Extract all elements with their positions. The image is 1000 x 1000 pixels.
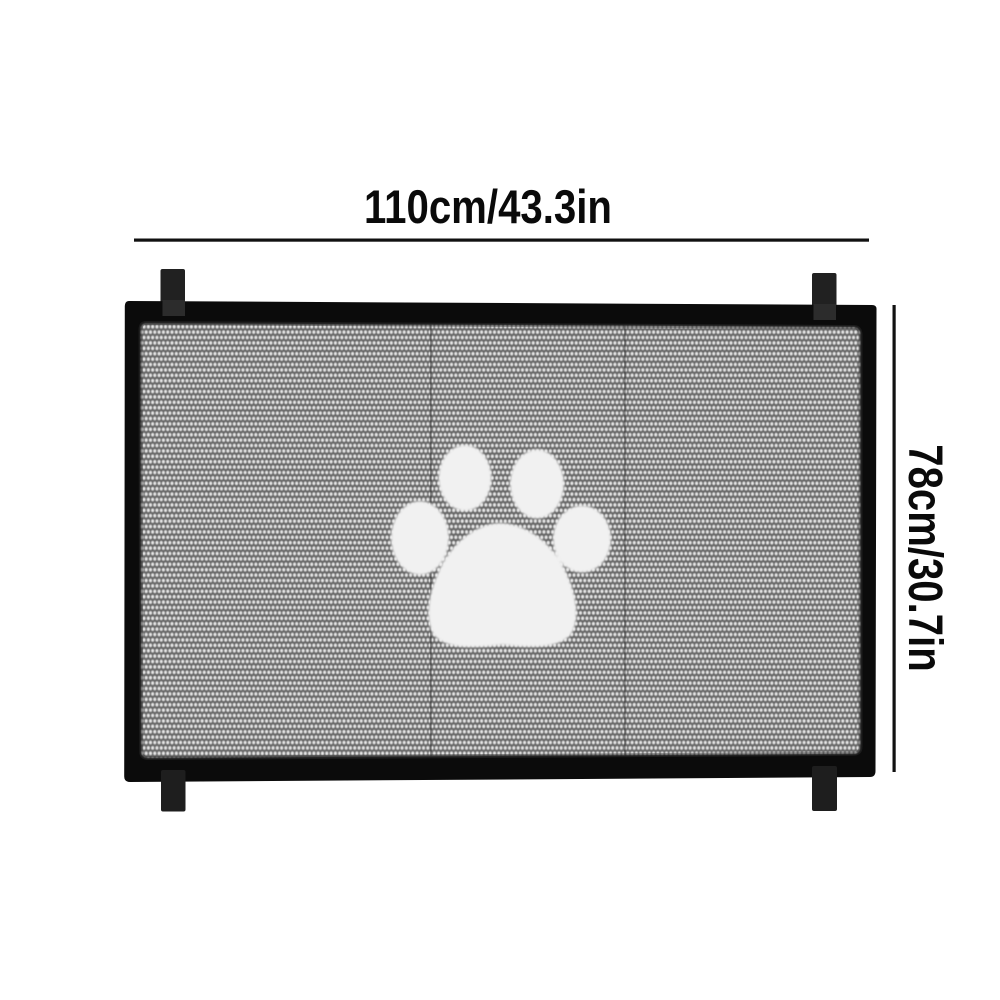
svg-text:110cm/43.3in: 110cm/43.3in [364,181,612,234]
svg-text:78cm/30.7in: 78cm/30.7in [898,444,951,671]
